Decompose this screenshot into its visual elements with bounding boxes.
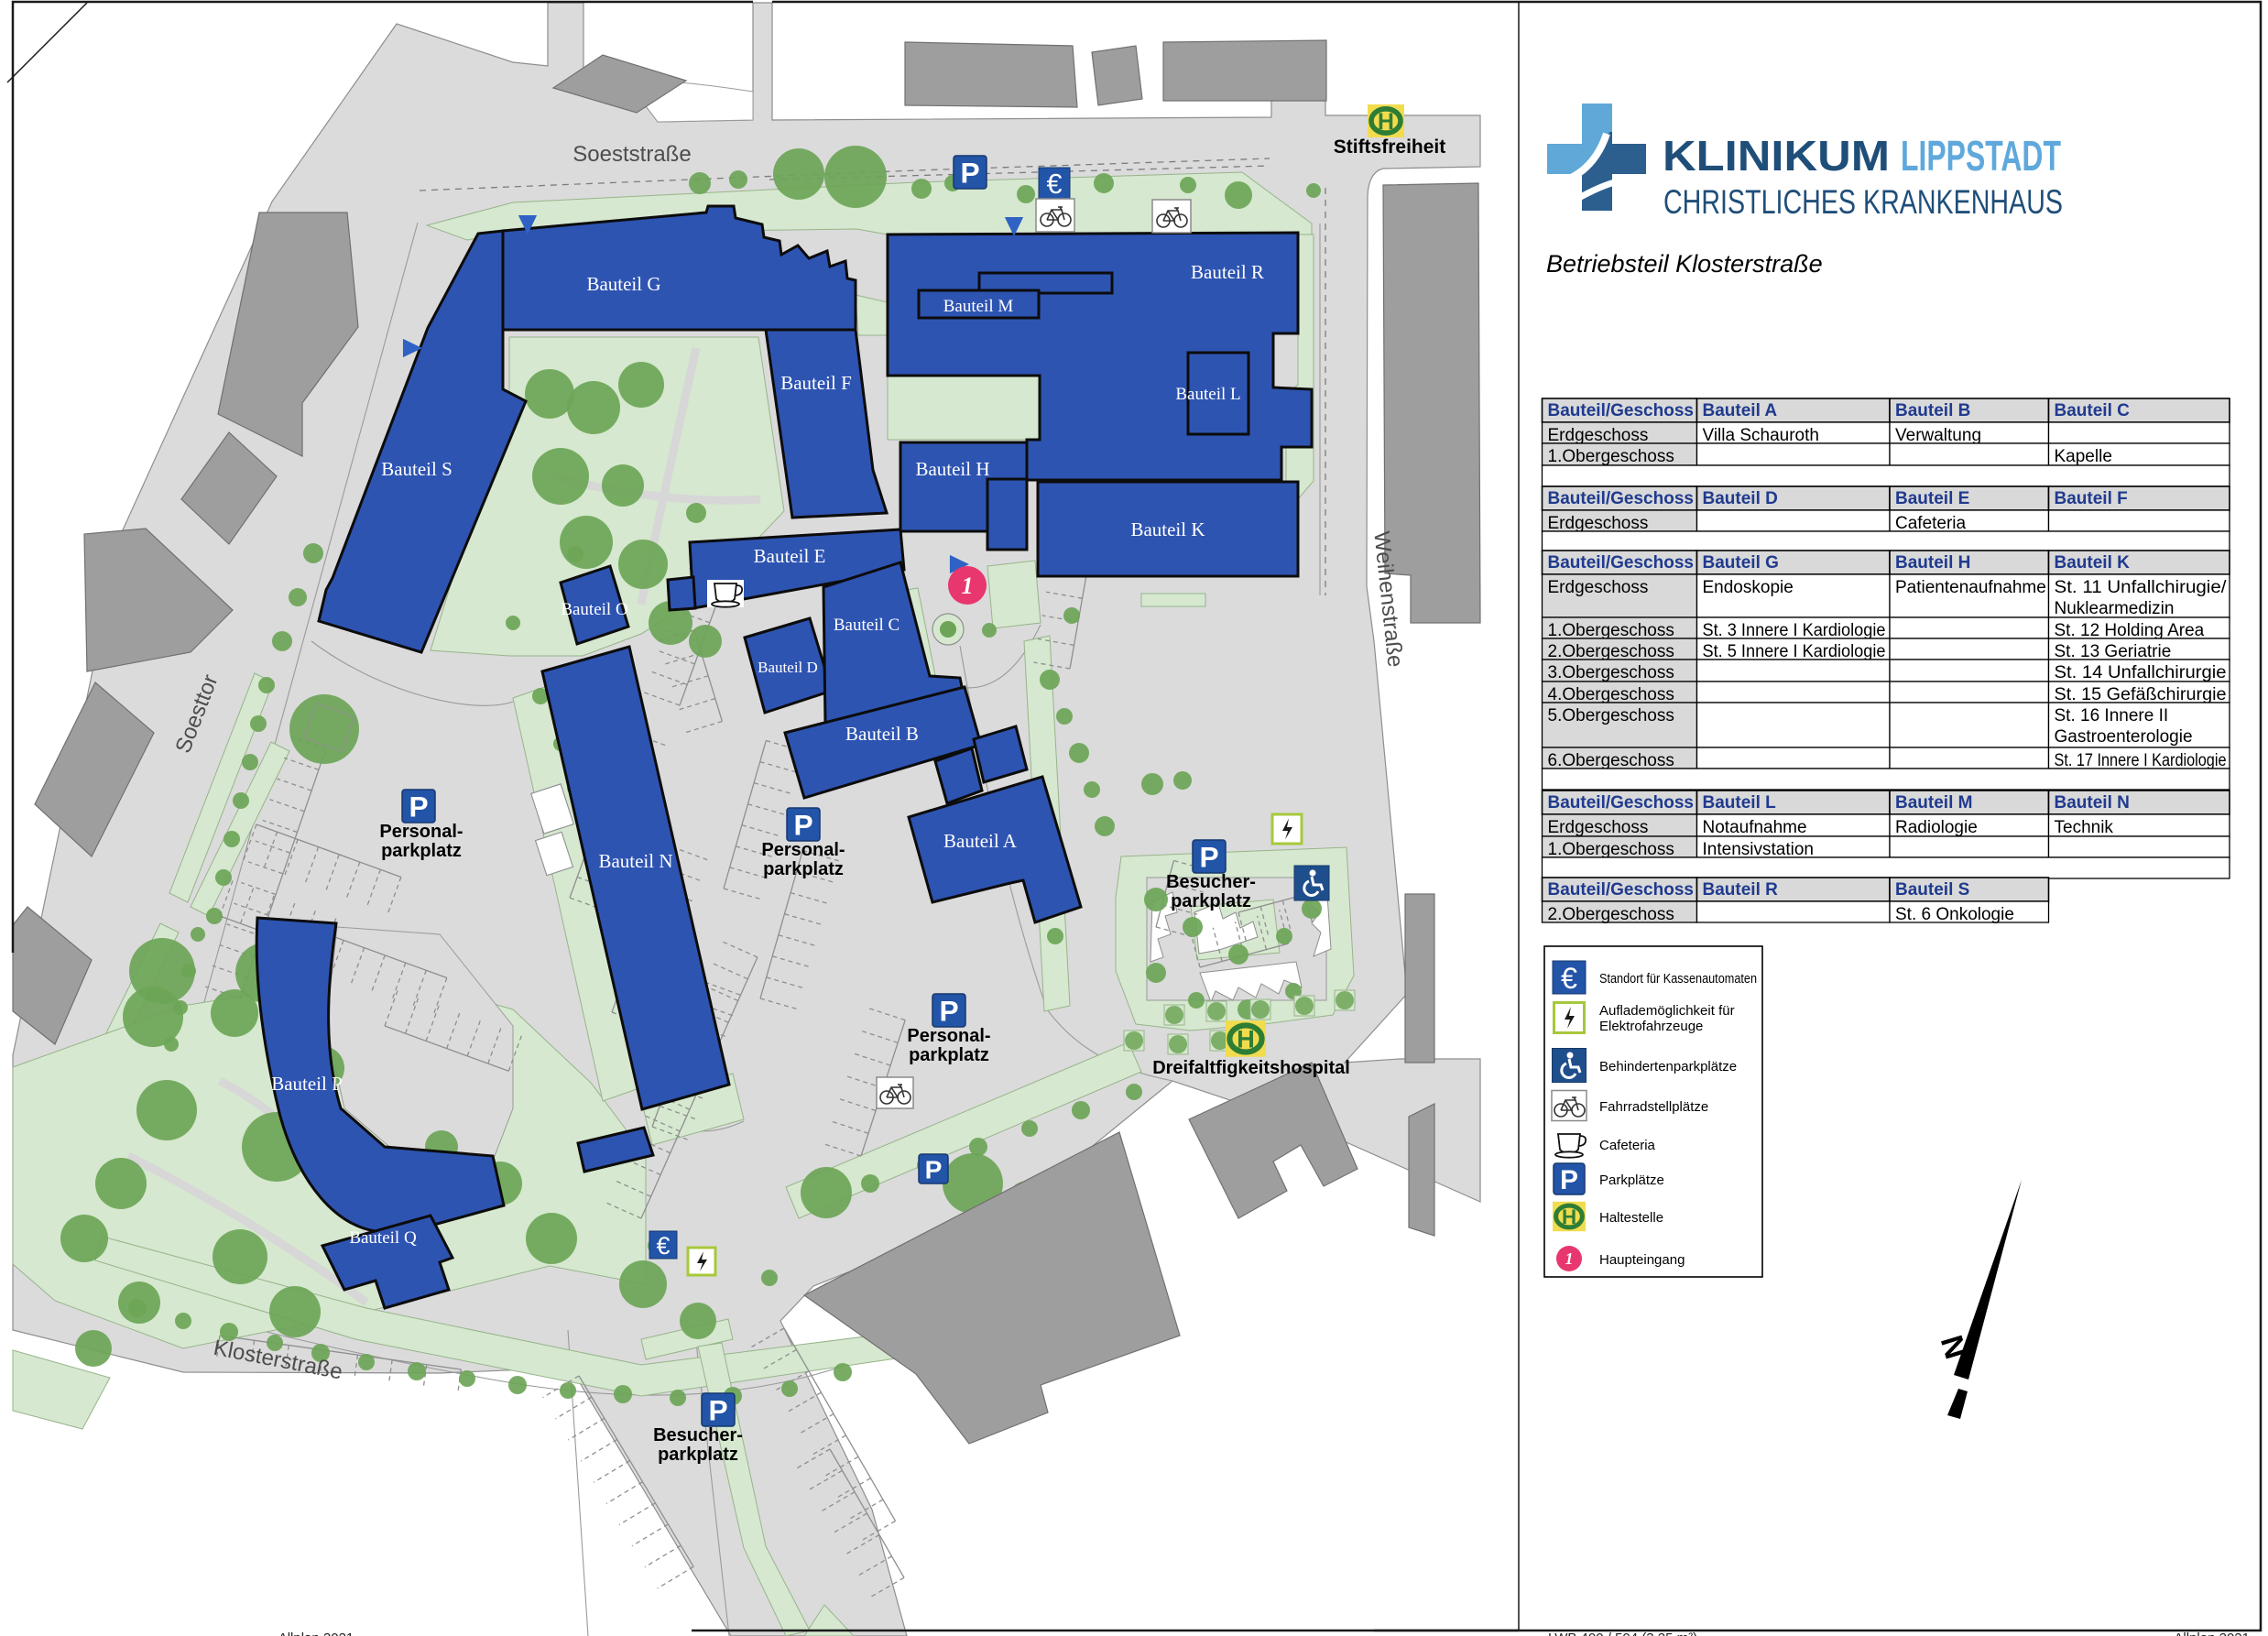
svg-text:Endoskopie: Endoskopie xyxy=(1703,578,1794,597)
svg-text:Erdgeschoss: Erdgeschoss xyxy=(1548,578,1649,597)
svg-text:parkplatz: parkplatz xyxy=(381,841,462,861)
svg-text:Bauteil B: Bauteil B xyxy=(845,723,919,745)
svg-text:P: P xyxy=(925,1155,943,1183)
svg-text:LIPPSTADT: LIPPSTADT xyxy=(1901,132,2061,180)
svg-text:St. 5 Innere I Kardiologie: St. 5 Innere I Kardiologie xyxy=(1703,642,1886,661)
svg-text:Personal-: Personal- xyxy=(379,822,463,842)
svg-text:3.Obergeschoss: 3.Obergeschoss xyxy=(1548,663,1674,682)
svg-text:Cafeteria: Cafeteria xyxy=(1599,1138,1656,1153)
svg-text:Technik: Technik xyxy=(2055,818,2114,837)
svg-text:1.Obergeschoss: 1.Obergeschoss xyxy=(1548,447,1674,466)
svg-text:4.Obergeschoss: 4.Obergeschoss xyxy=(1548,685,1674,704)
svg-text:€: € xyxy=(1561,962,1577,995)
svg-text:Bauteil N: Bauteil N xyxy=(598,850,672,872)
svg-text:P: P xyxy=(960,157,979,190)
svg-text:Bauteil H: Bauteil H xyxy=(915,458,989,480)
svg-text:Haltestelle: Haltestelle xyxy=(1599,1210,1663,1226)
svg-text:Bauteil O: Bauteil O xyxy=(561,600,627,619)
svg-text:Bauteil/Geschoss: Bauteil/Geschoss xyxy=(1548,401,1694,420)
svg-text:Bauteil S: Bauteil S xyxy=(381,458,453,480)
svg-text:P: P xyxy=(409,791,428,823)
svg-text:Bauteil/Geschoss: Bauteil/Geschoss xyxy=(1548,880,1694,900)
svg-text:Erdgeschoss: Erdgeschoss xyxy=(1548,514,1649,533)
svg-text:5.Obergeschoss: 5.Obergeschoss xyxy=(1548,706,1674,725)
svg-text:Besucher-: Besucher- xyxy=(653,1425,743,1445)
svg-text:Elektrofahrzeuge: Elektrofahrzeuge xyxy=(1599,1019,1703,1034)
svg-text:Bauteil K: Bauteil K xyxy=(1130,518,1205,540)
svg-text:Bauteil/Geschoss: Bauteil/Geschoss xyxy=(1548,489,1694,508)
svg-text:Bauteil A: Bauteil A xyxy=(1703,401,1778,420)
svg-text:Standort für Kassenautomaten: Standort für Kassenautomaten xyxy=(1599,971,1757,987)
svg-text:St. 13 Geriatrie: St. 13 Geriatrie xyxy=(2055,642,2172,661)
svg-text:Kapelle: Kapelle xyxy=(2055,447,2112,466)
svg-text:Auflademöglichkeit für: Auflademöglichkeit für xyxy=(1599,1003,1735,1019)
svg-text:St. 17 Innere I Kardiologie: St. 17 Innere I Kardiologie xyxy=(2055,751,2227,770)
svg-text:Bauteil Q: Bauteil Q xyxy=(349,1228,417,1248)
svg-text:Bauteil N: Bauteil N xyxy=(2055,793,2130,813)
svg-text:St. 6 Onkologie: St. 6 Onkologie xyxy=(1895,905,2014,924)
svg-text:Villa Schauroth: Villa Schauroth xyxy=(1703,426,1819,445)
svg-text:Bauteil B: Bauteil B xyxy=(1895,401,1970,420)
svg-text:parkplatz: parkplatz xyxy=(909,1045,989,1065)
svg-text:Bauteil E: Bauteil E xyxy=(1895,489,1969,508)
svg-text:Bauteil/Geschoss: Bauteil/Geschoss xyxy=(1548,793,1694,813)
svg-text:Bauteil A: Bauteil A xyxy=(943,830,1018,852)
svg-text:Stiftsfreiheit: Stiftsfreiheit xyxy=(1334,136,1446,158)
svg-text:2.Obergeschoss: 2.Obergeschoss xyxy=(1548,905,1674,924)
svg-text:Dreifaltfigkeitshospital: Dreifaltfigkeitshospital xyxy=(1152,1058,1350,1078)
svg-text:St. 14 Unfallchirurgie: St. 14 Unfallchirurgie xyxy=(2055,663,2227,682)
svg-text:parkplatz: parkplatz xyxy=(763,859,844,879)
svg-text:St. 11 Unfallchirugie/: St. 11 Unfallchirugie/ xyxy=(2055,578,2228,597)
svg-text:€: € xyxy=(1046,169,1062,200)
svg-text:Erdgeschoss: Erdgeschoss xyxy=(1548,818,1649,837)
svg-text:Bauteil P: Bauteil P xyxy=(271,1073,343,1095)
svg-text:Parkplätze: Parkplätze xyxy=(1599,1172,1664,1188)
svg-text:CHRISTLICHES KRANKENHAUS: CHRISTLICHES KRANKENHAUS xyxy=(1663,183,2063,221)
svg-text:Bauteil H: Bauteil H xyxy=(1895,553,1970,573)
svg-text:Bauteil K: Bauteil K xyxy=(2055,553,2131,573)
svg-text:Bauteil D: Bauteil D xyxy=(758,659,818,676)
svg-text:Bauteil L: Bauteil L xyxy=(1703,793,1777,813)
svg-text:Allplan 2021: Allplan 2021 xyxy=(2174,1631,2250,1636)
svg-text:P: P xyxy=(1560,1165,1578,1195)
svg-text:St. 15 Gefäßchirurgie: St. 15 Gefäßchirurgie xyxy=(2055,685,2227,704)
svg-text:Haupteingang: Haupteingang xyxy=(1599,1252,1685,1268)
svg-text:Radiologie: Radiologie xyxy=(1895,818,1978,837)
svg-text:LWB 400 / 504 (3,25 m²): LWB 400 / 504 (3,25 m²) xyxy=(1548,1631,1697,1636)
svg-text:parkplatz: parkplatz xyxy=(658,1445,738,1465)
svg-text:Betriebsteil Klosterstraße: Betriebsteil Klosterstraße xyxy=(1546,250,1823,278)
svg-text:Erdgeschoss: Erdgeschoss xyxy=(1548,426,1649,445)
svg-text:Fahrradstellplätze: Fahrradstellplätze xyxy=(1599,1099,1708,1115)
svg-text:Personal-: Personal- xyxy=(761,840,845,860)
svg-text:Besucher-: Besucher- xyxy=(1166,872,1256,892)
svg-text:1: 1 xyxy=(962,573,974,599)
svg-text:Bauteil/Geschoss: Bauteil/Geschoss xyxy=(1548,553,1694,573)
svg-text:1: 1 xyxy=(1565,1249,1574,1268)
svg-text:P: P xyxy=(793,809,812,842)
svg-text:Bauteil M: Bauteil M xyxy=(1895,793,1972,813)
svg-text:Behindertenparkplätze: Behindertenparkplätze xyxy=(1599,1059,1737,1074)
svg-text:Verwaltung: Verwaltung xyxy=(1895,426,1981,445)
svg-text:parkplatz: parkplatz xyxy=(1171,891,1251,911)
svg-text:Bauteil E: Bauteil E xyxy=(754,545,826,567)
svg-text:St. 12 Holding Area: St. 12 Holding Area xyxy=(2055,621,2205,640)
svg-text:Personal-: Personal- xyxy=(907,1026,990,1046)
svg-text:1.Obergeschoss: 1.Obergeschoss xyxy=(1548,840,1674,859)
svg-text:Patientenaufnahme: Patientenaufnahme xyxy=(1895,578,2046,597)
svg-text:P: P xyxy=(939,995,958,1028)
svg-text:H: H xyxy=(1378,110,1394,135)
svg-text:Cafeteria: Cafeteria xyxy=(1895,514,1967,533)
svg-text:Bauteil F: Bauteil F xyxy=(2055,489,2128,508)
svg-text:Bauteil G: Bauteil G xyxy=(1703,553,1779,573)
svg-text:Bauteil R: Bauteil R xyxy=(1703,880,1779,900)
svg-text:Bauteil D: Bauteil D xyxy=(1703,489,1778,508)
svg-text:Bauteil L: Bauteil L xyxy=(1175,385,1240,404)
svg-text:Soeststraße: Soeststraße xyxy=(572,142,691,167)
svg-text:1.Obergeschoss: 1.Obergeschoss xyxy=(1548,621,1674,640)
svg-text:Bauteil S: Bauteil S xyxy=(1895,880,1969,900)
svg-text:Bauteil C: Bauteil C xyxy=(834,616,900,635)
svg-text:Gastroenterologie: Gastroenterologie xyxy=(2055,727,2193,747)
svg-text:Bauteil R: Bauteil R xyxy=(1191,261,1264,283)
svg-text:Notaufnahme: Notaufnahme xyxy=(1703,818,1807,837)
svg-text:P: P xyxy=(708,1394,727,1427)
svg-text:6.Obergeschoss: 6.Obergeschoss xyxy=(1548,751,1674,770)
svg-text:Bauteil M: Bauteil M xyxy=(943,297,1014,316)
svg-text:Allplan 2021: Allplan 2021 xyxy=(278,1631,354,1636)
svg-text:Bauteil C: Bauteil C xyxy=(2055,401,2131,420)
svg-text:KLINIKUM: KLINIKUM xyxy=(1663,132,1890,180)
svg-text:Intensivstation: Intensivstation xyxy=(1703,840,1814,859)
svg-text:€: € xyxy=(656,1232,670,1260)
svg-text:Nuklearmedizin: Nuklearmedizin xyxy=(2055,599,2175,618)
svg-text:2.Obergeschoss: 2.Obergeschoss xyxy=(1548,642,1674,661)
svg-text:St. 16 Innere II: St. 16 Innere II xyxy=(2055,706,2169,725)
svg-text:H: H xyxy=(1237,1025,1255,1053)
svg-text:P: P xyxy=(1199,841,1218,874)
svg-text:H: H xyxy=(1562,1205,1576,1228)
svg-text:Bauteil G: Bauteil G xyxy=(586,273,660,295)
svg-text:Bauteil F: Bauteil F xyxy=(780,372,852,394)
svg-text:St. 3 Innere I Kardiologie: St. 3 Innere I Kardiologie xyxy=(1703,621,1886,640)
